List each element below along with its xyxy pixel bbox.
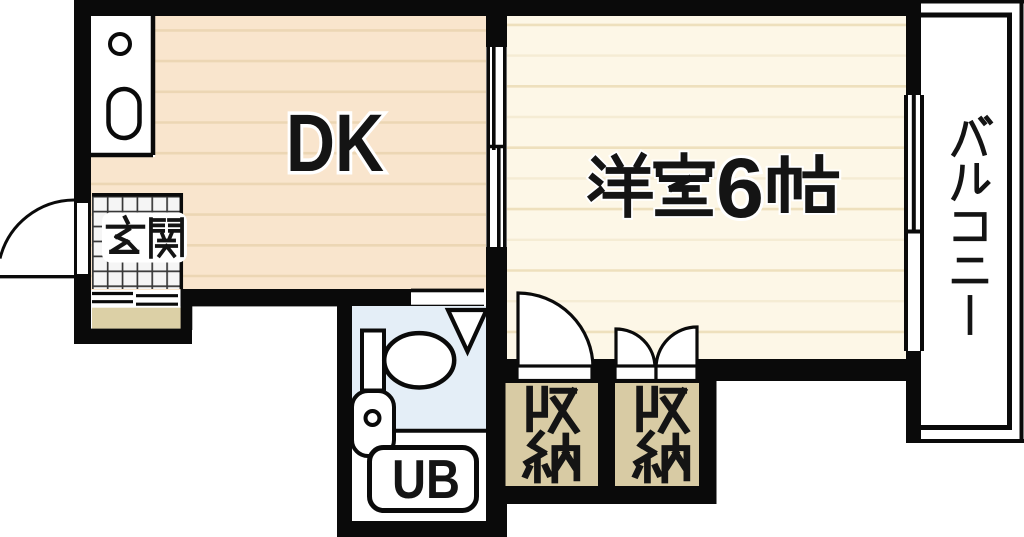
svg-text:DK: DK <box>286 98 384 189</box>
svg-text:6: 6 <box>716 141 764 235</box>
svg-text:UB: UB <box>392 448 460 510</box>
